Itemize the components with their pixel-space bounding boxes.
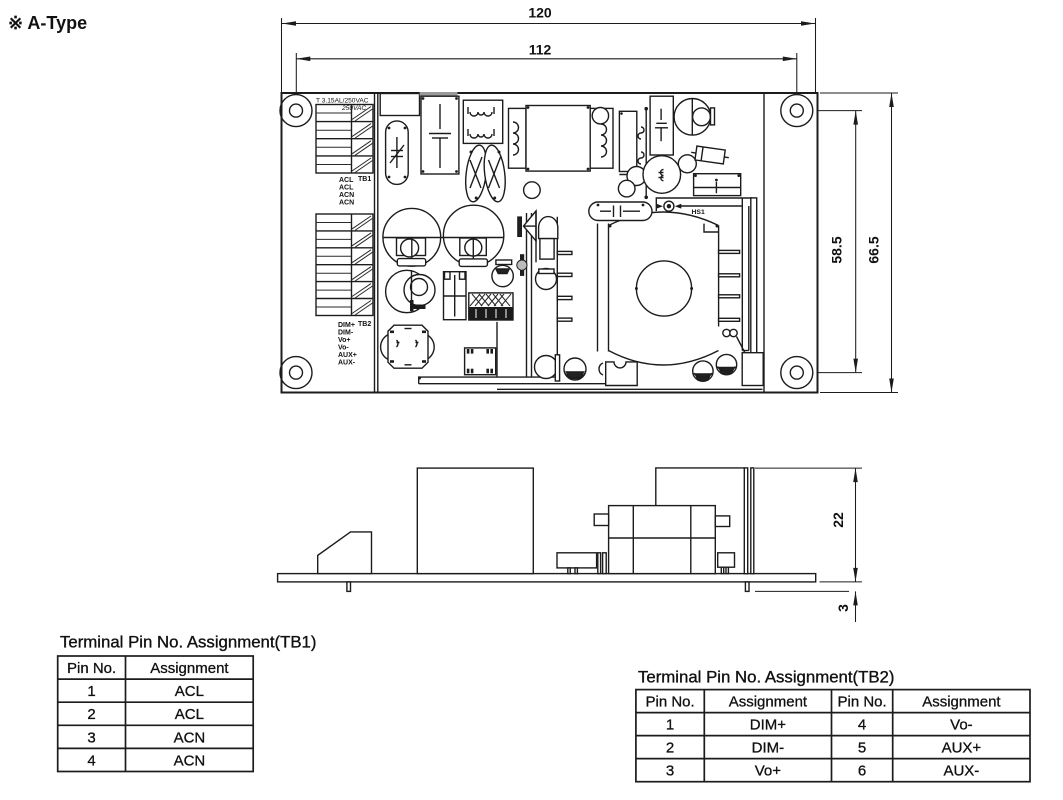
svg-text:ACN: ACN: [174, 729, 206, 746]
svg-text:66.5: 66.5: [866, 236, 882, 263]
svg-text:4: 4: [87, 752, 95, 769]
svg-text:ACL: ACL: [175, 706, 204, 723]
svg-text:4: 4: [858, 717, 866, 734]
svg-text:T 3.15AL/250VAC: T 3.15AL/250VAC: [316, 98, 369, 105]
svg-text:DIM-: DIM-: [338, 330, 354, 337]
svg-text:Vo+: Vo+: [338, 337, 351, 344]
svg-text:3: 3: [666, 763, 674, 780]
svg-text:1: 1: [87, 683, 95, 700]
svg-text:3: 3: [87, 729, 95, 746]
svg-text:ACL: ACL: [339, 185, 354, 192]
svg-text:AUX+: AUX+: [338, 352, 357, 359]
svg-text:2: 2: [87, 706, 95, 723]
svg-text:Terminal Pin No. Assignment(TB: Terminal Pin No. Assignment(TB1): [60, 633, 316, 652]
svg-text:22: 22: [830, 512, 846, 528]
svg-text:HS1: HS1: [692, 209, 705, 216]
svg-text:ACL: ACL: [339, 177, 354, 184]
svg-text:TB2: TB2: [358, 321, 371, 328]
svg-text:Assignment: Assignment: [922, 694, 1001, 711]
svg-text:250VAC: 250VAC: [341, 105, 366, 112]
svg-text:5: 5: [858, 740, 866, 757]
svg-text:Vo-: Vo-: [338, 345, 349, 352]
svg-text:DIM-: DIM-: [752, 740, 785, 757]
svg-text:Assignment: Assignment: [150, 660, 229, 677]
svg-text:Vo-: Vo-: [950, 717, 973, 734]
svg-text:※ A-Type: ※ A-Type: [8, 13, 87, 33]
svg-text:58.5: 58.5: [829, 236, 845, 263]
svg-text:ACL: ACL: [175, 683, 204, 700]
svg-text:3: 3: [835, 604, 851, 612]
svg-text:ACN: ACN: [339, 192, 354, 199]
svg-text:6: 6: [858, 763, 866, 780]
svg-text:120: 120: [528, 5, 552, 21]
svg-text:AUX-: AUX-: [338, 360, 356, 367]
svg-text:1: 1: [666, 717, 674, 734]
svg-text:Pin No.: Pin No.: [645, 694, 694, 711]
svg-text:Terminal Pin No. Assignment(TB: Terminal Pin No. Assignment(TB2): [638, 668, 894, 687]
svg-text:ACN: ACN: [339, 200, 354, 207]
svg-text:112: 112: [529, 42, 552, 58]
svg-text:DIM+: DIM+: [338, 322, 355, 329]
svg-text:Vo+: Vo+: [755, 763, 782, 780]
svg-text:Assignment: Assignment: [729, 694, 808, 711]
svg-text:AUX+: AUX+: [942, 740, 982, 757]
svg-text:Pin No.: Pin No.: [837, 694, 886, 711]
svg-text:2: 2: [666, 740, 674, 757]
svg-text:Pin No.: Pin No.: [67, 660, 116, 677]
svg-text:AUX-: AUX-: [943, 763, 979, 780]
svg-text:TB1: TB1: [358, 176, 371, 183]
svg-text:DIM+: DIM+: [750, 717, 786, 734]
svg-text:ACN: ACN: [174, 752, 206, 769]
